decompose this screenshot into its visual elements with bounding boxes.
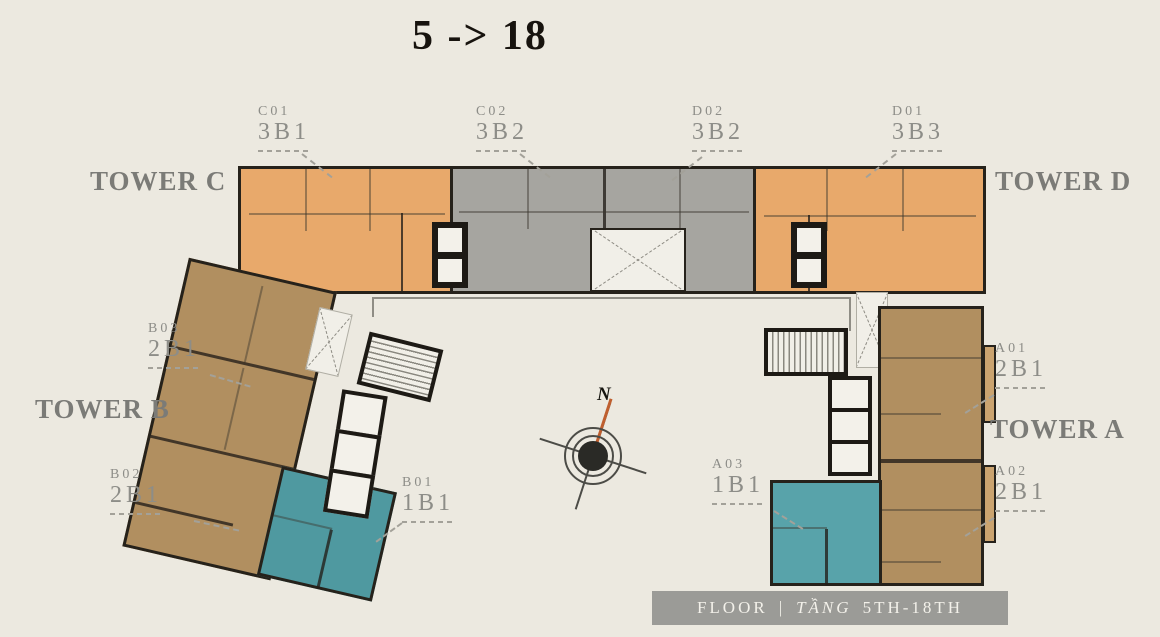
interior-wall — [249, 213, 445, 215]
unit-type: 3B3 — [892, 120, 944, 145]
interior-wall — [881, 357, 981, 359]
north-compass: N — [545, 388, 641, 506]
interior-wall — [305, 169, 307, 231]
label-dash-row — [402, 521, 454, 523]
elevator-core-right — [791, 222, 827, 288]
central-void — [590, 228, 686, 292]
label-dash-row — [476, 150, 528, 152]
unit-code: A01 — [995, 342, 1047, 357]
label-dash-row — [148, 367, 200, 369]
unit-type: 3B2 — [692, 120, 744, 145]
tower-a-label: TOWER A — [990, 414, 1125, 445]
right-lift-stack — [828, 380, 872, 476]
label-dash-row — [712, 503, 764, 505]
unit-code: A02 — [995, 465, 1047, 480]
unit-code: B02 — [110, 468, 162, 483]
interior-wall — [764, 215, 976, 217]
unit-type: 2B1 — [995, 480, 1047, 505]
interior-wall — [369, 169, 371, 231]
elevator-cab — [796, 227, 822, 253]
unit-label-b02: B02 2B1 — [110, 468, 162, 515]
elevator-cab — [437, 258, 463, 284]
interior-wall — [679, 169, 681, 229]
unit-a03-block — [770, 480, 882, 586]
unit-type: 3B1 — [258, 120, 310, 145]
label-dash-row — [110, 513, 162, 515]
label-dash-row — [892, 150, 944, 152]
tower-c-unit-block — [238, 166, 453, 294]
banner-range-text: 5TH-18TH — [863, 598, 963, 618]
unit-label-b01: B01 1B1 — [402, 476, 454, 523]
banner-floor-text: FLOOR — [697, 598, 768, 618]
elevator-cab — [796, 258, 822, 284]
interior-wall — [902, 169, 904, 231]
tower-b-label: TOWER B — [35, 394, 170, 425]
unit-label-a02: A02 2B1 — [995, 465, 1047, 512]
unit-type: 1B1 — [402, 491, 454, 516]
interior-wall — [881, 459, 981, 463]
unit-label-c02: C02 3B2 — [476, 105, 528, 152]
interior-wall — [881, 561, 941, 563]
unit-code: B03 — [148, 322, 200, 337]
courtyard-boundary-top — [372, 297, 850, 299]
elevator-shaft — [828, 376, 872, 412]
left-stairwell — [357, 332, 444, 403]
unit-label-a03: A03 1B1 — [712, 458, 764, 505]
unit-label-d01: D01 3B3 — [892, 105, 944, 152]
interior-wall — [316, 529, 332, 588]
unit-label-b03: B03 2B1 — [148, 322, 200, 369]
unit-label-c01: C01 3B1 — [258, 105, 310, 152]
unit-code: B01 — [402, 476, 454, 491]
interior-wall — [881, 413, 941, 415]
unit-type: 2B1 — [995, 357, 1047, 382]
interior-wall — [244, 286, 263, 362]
label-dash-row — [995, 510, 1047, 512]
unit-type: 1B1 — [712, 473, 764, 498]
elevator-shaft — [828, 408, 872, 444]
page-title: 5 -> 18 — [412, 12, 548, 60]
unit-type: 2B1 — [148, 337, 200, 362]
banner-tang-text: TẦNG — [796, 598, 851, 618]
unit-label-d02: D02 3B2 — [692, 105, 744, 152]
floor-range-banner: FLOOR | TẦNG 5TH-18TH — [652, 591, 1008, 625]
unit-code: A03 — [712, 458, 764, 473]
unit-code: C02 — [476, 105, 528, 120]
unit-type: 2B1 — [110, 483, 162, 508]
tower-a-wing — [878, 306, 984, 586]
interior-wall — [881, 509, 981, 511]
label-dash-row — [692, 150, 744, 152]
interior-wall — [527, 169, 529, 229]
tower-c-label: TOWER C — [90, 166, 226, 197]
elevator-core-left — [432, 222, 468, 288]
interior-wall — [459, 211, 749, 213]
elevator-shaft — [828, 440, 872, 476]
compass-center-dot — [578, 441, 608, 471]
unit-label-a01: A01 2B1 — [995, 342, 1047, 389]
banner-separator: | — [779, 598, 785, 618]
interior-wall — [825, 529, 828, 585]
right-stairwell — [764, 328, 848, 376]
interior-wall — [150, 435, 293, 471]
tower-d-label: TOWER D — [995, 166, 1131, 197]
unit-code: D01 — [892, 105, 944, 120]
tower-d-unit-block — [753, 166, 986, 294]
elevator-shaft — [323, 468, 375, 519]
unit-type: 3B2 — [476, 120, 528, 145]
floor-plan-page: 5 -> 18 — [0, 0, 1160, 637]
elevator-cab — [437, 227, 463, 253]
unit-code: D02 — [692, 105, 744, 120]
courtyard-boundary-right — [849, 297, 851, 331]
label-dash-row — [995, 387, 1047, 389]
unit-code: C01 — [258, 105, 310, 120]
courtyard-boundary-left — [372, 297, 374, 317]
label-dash-row — [258, 150, 310, 152]
interior-wall — [401, 213, 403, 291]
interior-wall — [273, 514, 332, 529]
